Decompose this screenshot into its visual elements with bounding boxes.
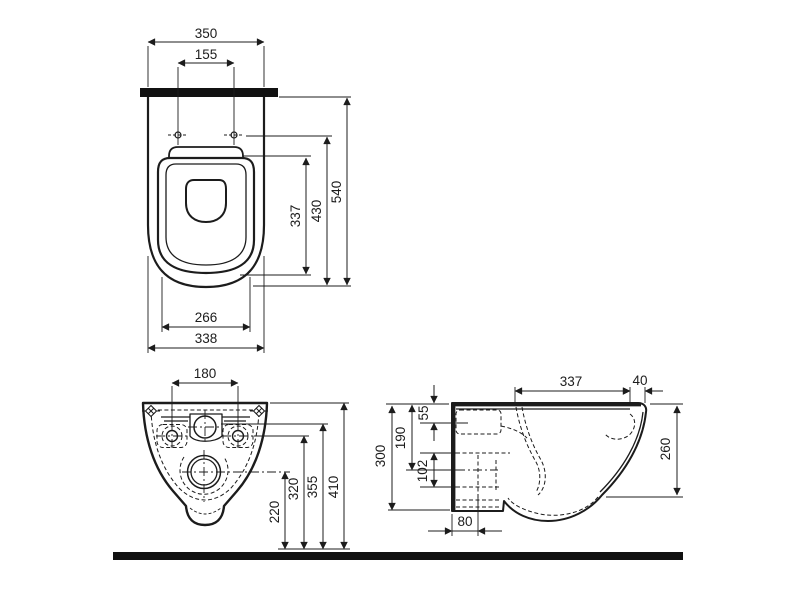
dim-side-depth-337: 337 [515, 374, 630, 391]
side-view: 337 40 55 190 102 300 260 [373, 373, 683, 536]
dim-front-drain-height-220: 220 [267, 472, 285, 549]
dim-top-body-width-338: 338 [148, 331, 264, 348]
dim-label-337-top: 337 [288, 205, 303, 228]
dim-side-wall-gap-40: 40 [612, 373, 663, 391]
dim-label-320: 320 [286, 478, 301, 501]
dim-label-80: 80 [457, 514, 472, 529]
dim-label-338: 338 [195, 331, 218, 346]
front-body-outline [143, 403, 267, 525]
dim-label-430: 430 [309, 200, 324, 223]
dim-label-155: 155 [195, 47, 218, 62]
floor-line [113, 552, 683, 560]
side-body-outline [452, 403, 646, 521]
dim-top-seat-width-266: 266 [162, 310, 250, 327]
dim-top-depth-inner-430: 430 [309, 137, 327, 285]
dim-side-projection-300: 300 [373, 406, 392, 510]
dim-front-fixing-spacing-180: 180 [172, 366, 238, 383]
technical-drawing-page: 350 155 337 430 540 266 338 [0, 0, 800, 600]
dim-label-337-side: 337 [560, 374, 583, 389]
dim-top-seat-depth-337: 337 [288, 158, 306, 274]
bowl-opening [186, 180, 226, 222]
dim-front-total-height-410: 410 [326, 403, 344, 549]
dim-label-260: 260 [658, 438, 673, 461]
dim-side-outlet-offset-80: 80 [428, 514, 502, 531]
wall-section-bar [140, 88, 278, 97]
dim-label-350: 350 [195, 26, 218, 41]
dim-label-40: 40 [632, 373, 647, 388]
technical-drawing-canvas: 350 155 337 430 540 266 338 [0, 0, 800, 600]
dim-label-266: 266 [195, 310, 218, 325]
dim-label-300: 300 [373, 445, 388, 468]
dim-label-180: 180 [194, 366, 217, 381]
dim-side-outlet-drop-190: 190 [393, 405, 412, 470]
dim-label-55: 55 [416, 405, 431, 420]
dim-label-355: 355 [305, 476, 320, 499]
dim-top-bolt-spacing-155: 155 [178, 47, 234, 63]
dim-top-width-350: 350 [148, 26, 264, 42]
dim-label-540: 540 [329, 181, 344, 204]
dim-label-220: 220 [267, 501, 282, 524]
dim-side-front-height-260: 260 [658, 406, 677, 495]
dim-front-fixing-height-320: 320 [286, 436, 304, 549]
front-view: 180 220 320 355 410 [142, 366, 350, 549]
dim-label-190: 190 [393, 427, 408, 450]
dim-top-depth-total-540: 540 [329, 98, 347, 285]
dim-side-inlet-drop-55: 55 [416, 385, 434, 441]
dim-front-inlet-height-355: 355 [305, 424, 323, 549]
dim-label-410: 410 [326, 476, 341, 499]
dim-label-102: 102 [415, 460, 430, 483]
top-view: 350 155 337 430 540 266 338 [140, 26, 351, 353]
